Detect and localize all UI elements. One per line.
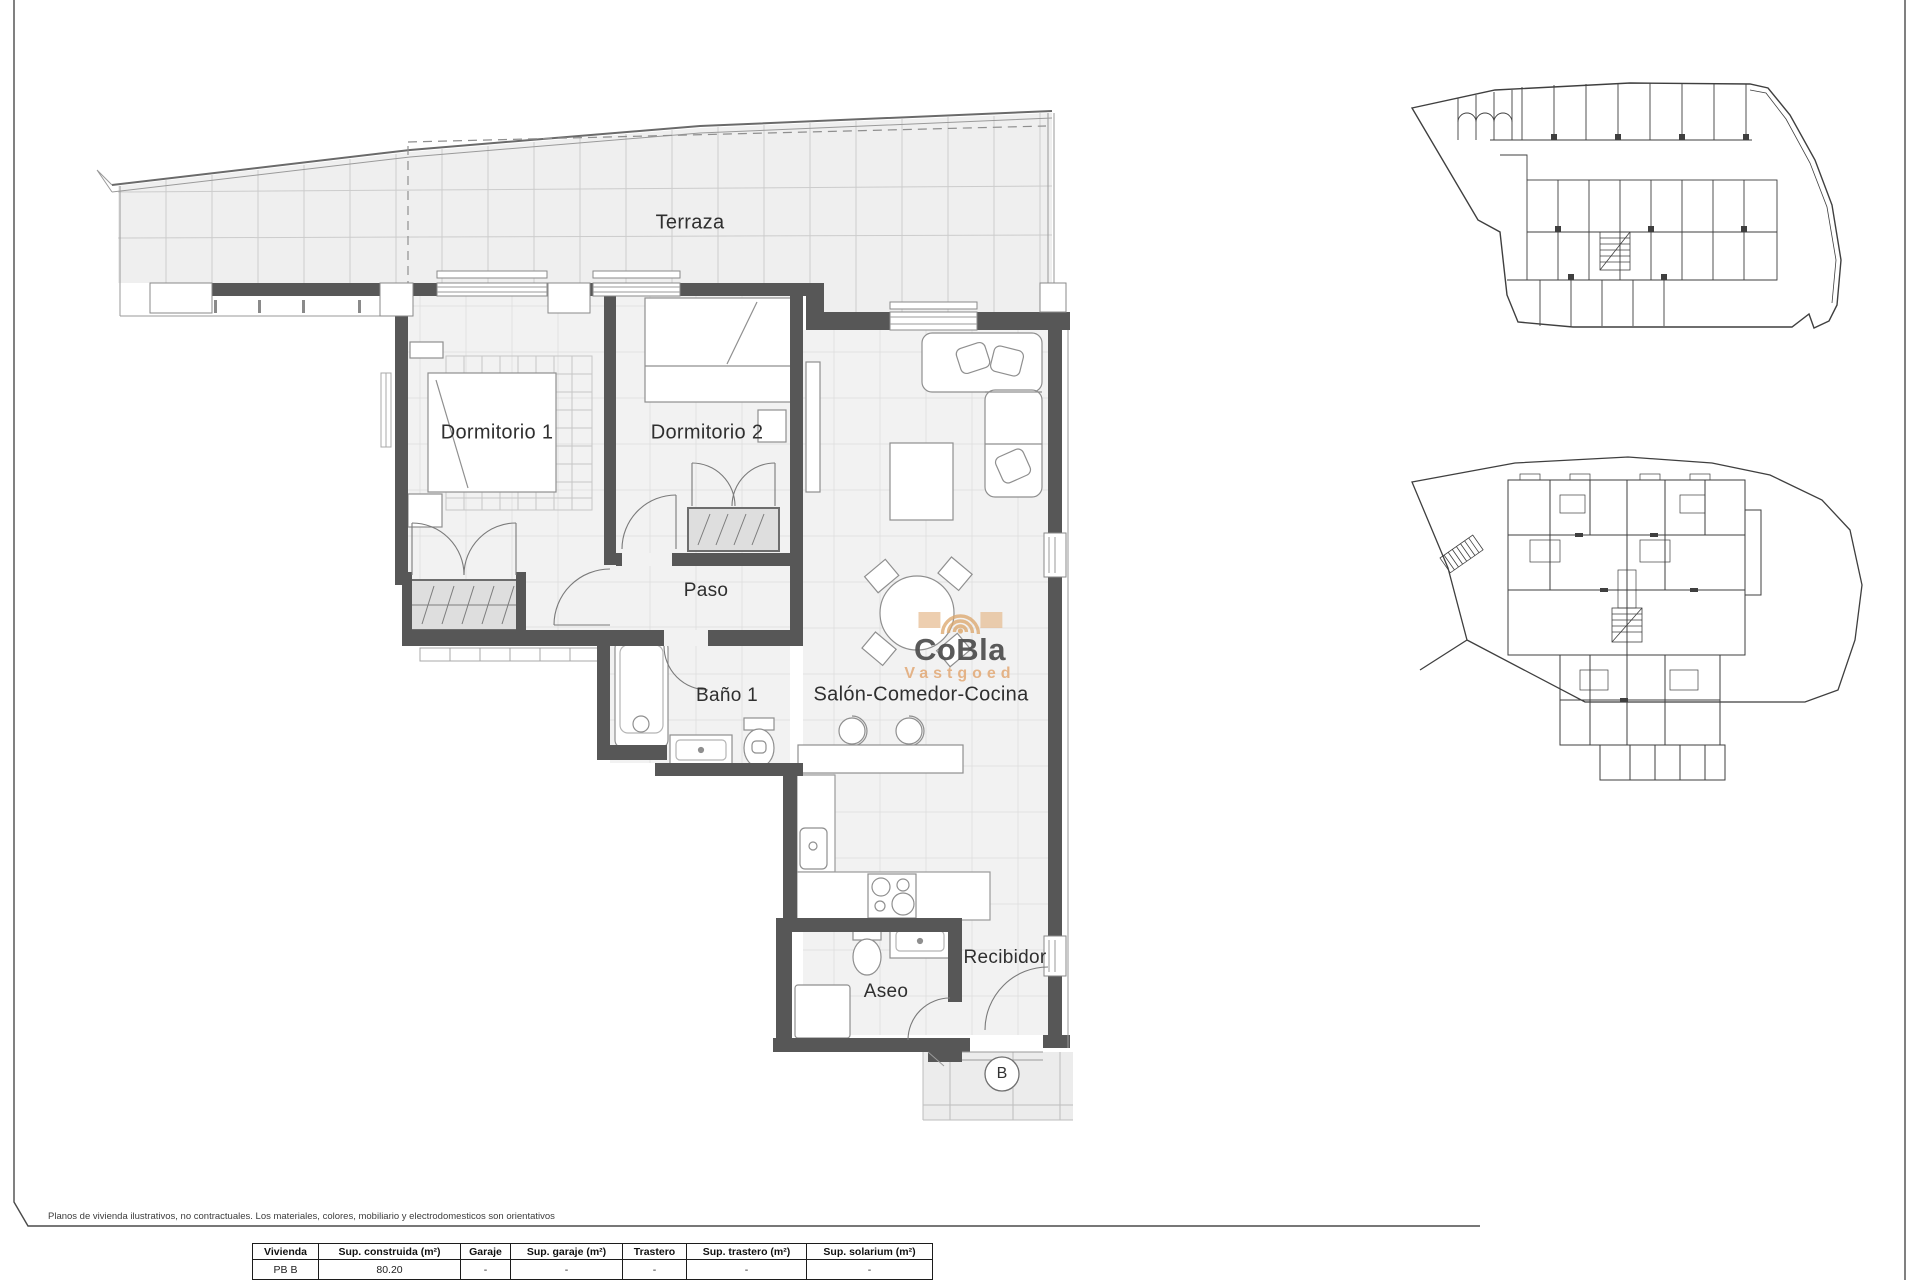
disclaimer-text: Planos de vivienda ilustrativos, no cont…	[48, 1211, 555, 1222]
col-header-sup-garaje: Sup. garaje (m²)	[511, 1244, 623, 1260]
unit-badge-label: B	[997, 1065, 1008, 1083]
surface-summary-table: Vivienda Sup. construida (m²) Garaje Sup…	[252, 1243, 933, 1280]
plan-sheet: Terraza Dormitorio 1 Dormitorio 2 Paso B…	[0, 0, 1920, 1280]
logo-name: CoBla	[904, 634, 1015, 665]
room-label-terraza: Terraza	[656, 212, 725, 235]
room-label-paso: Paso	[684, 580, 729, 602]
cell-sup-garaje: -	[511, 1260, 623, 1280]
logo-subtitle: Vastgoed	[904, 666, 1015, 682]
col-header-vivienda: Vivienda	[253, 1244, 319, 1260]
cell-sup-solarium: -	[807, 1260, 933, 1280]
cobla-logo: CoBla Vastgoed	[904, 604, 1015, 682]
col-header-garaje: Garaje	[461, 1244, 511, 1260]
room-label-dormitorio-2: Dormitorio 2	[651, 422, 764, 445]
table-header-row: Vivienda Sup. construida (m²) Garaje Sup…	[253, 1244, 933, 1260]
room-label-recibidor: Recibidor	[964, 947, 1047, 969]
room-label-aseo: Aseo	[864, 981, 909, 1003]
cell-trastero: -	[623, 1260, 687, 1280]
cell-sup-construida: 80.20	[319, 1260, 461, 1280]
site-plan-building	[1412, 457, 1862, 780]
col-header-sup-trastero: Sup. trastero (m²)	[687, 1244, 807, 1260]
room-label-bano-1: Baño 1	[696, 685, 758, 707]
cell-garaje: -	[461, 1260, 511, 1280]
col-header-sup-solarium: Sup. solarium (m²)	[807, 1244, 933, 1260]
cell-vivienda: PB B	[253, 1260, 319, 1280]
cobla-logo-mark-icon	[918, 604, 1002, 634]
col-header-sup-construida: Sup. construida (m²)	[319, 1244, 461, 1260]
site-plan-garage	[1412, 83, 1841, 328]
room-label-salon-comedor-cocina: Salón-Comedor-Cocina	[814, 684, 1029, 707]
table-row: PB B 80.20 - - - - -	[253, 1260, 933, 1280]
room-label-dormitorio-1: Dormitorio 1	[441, 422, 554, 445]
cell-sup-trastero: -	[687, 1260, 807, 1280]
col-header-trastero: Trastero	[623, 1244, 687, 1260]
